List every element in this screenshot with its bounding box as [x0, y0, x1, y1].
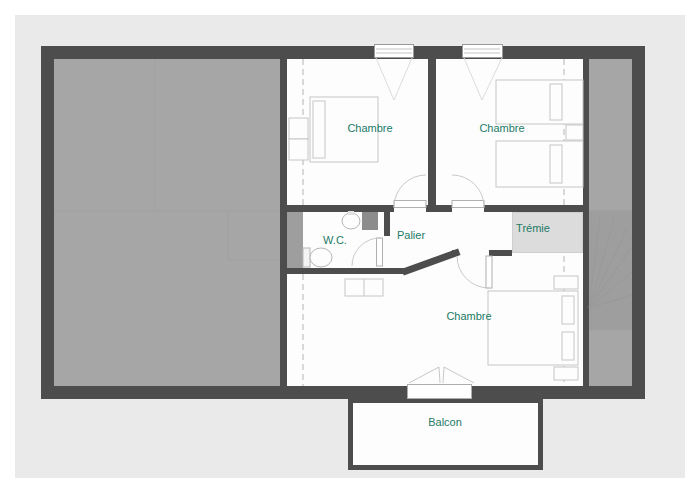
door-chambre-1	[394, 175, 426, 208]
room-label-chambre-3: Chambre	[446, 310, 491, 322]
attic-seam-lines	[54, 59, 280, 260]
room-label-chambre-2: Chambre	[479, 122, 524, 134]
staircase	[589, 210, 632, 330]
sink	[342, 211, 360, 229]
roof-window	[375, 45, 414, 101]
floorplan-drawing	[0, 0, 700, 500]
french-door-swing	[409, 367, 474, 383]
floor-plan-canvas: Chambre Chambre Chambre W.C. Palier Trém…	[0, 0, 700, 500]
door-chambre-2	[452, 175, 484, 208]
room-label-tremie: Trémie	[516, 222, 550, 234]
diagonal-wall	[406, 253, 456, 271]
room-label-balcon: Balcon	[428, 416, 462, 428]
toilet	[303, 248, 332, 267]
room-label-wc: W.C.	[323, 234, 347, 246]
room-label-chambre-1: Chambre	[347, 122, 392, 134]
dresser	[345, 279, 383, 296]
bed-chambre-3	[488, 276, 578, 380]
door-wc	[352, 238, 383, 266]
room-label-palier: Palier	[397, 229, 425, 241]
door-chambre-3	[457, 256, 492, 288]
